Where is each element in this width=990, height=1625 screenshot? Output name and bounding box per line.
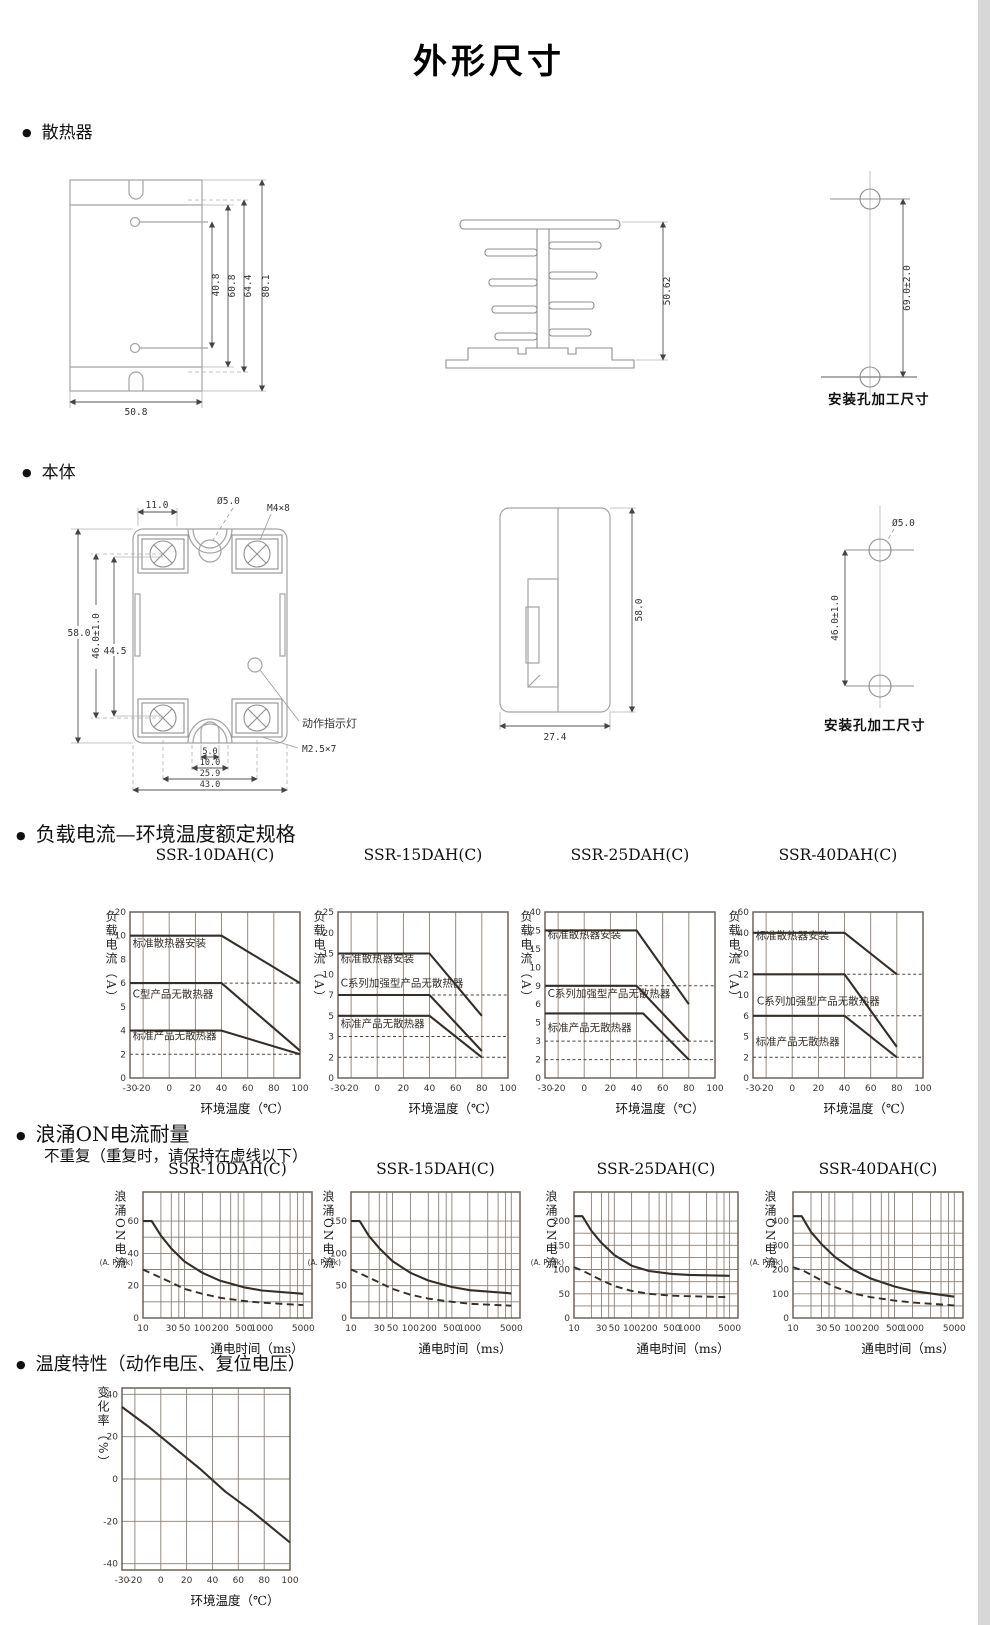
heatsink-front-view: 40.8 60.8 64.4 80.1 50.8: [38, 166, 308, 418]
svg-text:60: 60: [450, 1084, 462, 1094]
svg-text:50: 50: [336, 1282, 348, 1292]
heatsink-outline: [70, 180, 208, 391]
svg-text:100: 100: [844, 1324, 861, 1334]
svg-text:1000: 1000: [678, 1324, 701, 1334]
svg-text:30: 30: [374, 1324, 386, 1334]
ylab: 负载电流（A）: [100, 910, 120, 1035]
svg-text:0: 0: [166, 1084, 172, 1094]
bullet-icon: ●: [16, 1129, 26, 1142]
svg-text:100: 100: [402, 1324, 419, 1334]
svg-text:5000: 5000: [500, 1324, 523, 1334]
plot-frame: [351, 1192, 520, 1318]
svg-text:0: 0: [564, 1314, 570, 1324]
svg-text:5: 5: [120, 1003, 126, 1013]
svg-text:0: 0: [120, 1074, 126, 1084]
dim-screw-pitch: 25.9: [200, 769, 220, 779]
dim-height: 58.0: [634, 598, 645, 621]
dim-width: 50.8: [125, 407, 148, 418]
ctitle: SSR-10DAH(C): [138, 1160, 318, 1178]
plot-frame: [143, 1192, 312, 1318]
ctitle: SSR-15DAH(C): [333, 846, 513, 864]
extension-lines: [500, 508, 636, 730]
svg-text:80: 80: [476, 1084, 488, 1094]
gridlines: [574, 1192, 738, 1318]
gridlines: [793, 1192, 963, 1318]
svg-text:4: 4: [120, 1027, 126, 1037]
heatsink-mounting-holes: 69.0±2.0: [805, 163, 980, 408]
svg-text:0: 0: [374, 1084, 380, 1094]
bullet-icon: ●: [16, 1358, 26, 1371]
svg-text:200: 200: [420, 1324, 437, 1334]
xlab: 通电时间（ms）: [841, 1338, 975, 1357]
series-label: C系列加强型产品无散热器: [341, 977, 464, 990]
caption-mounting-holes: 安装孔加工尺寸: [828, 388, 930, 408]
svg-text:-40: -40: [103, 1560, 118, 1570]
plot-frame: [793, 1192, 963, 1318]
ylab2: (A. Peak): [737, 1258, 783, 1267]
svg-text:0: 0: [535, 1074, 541, 1084]
dim-slot-span: 64.4: [243, 274, 254, 297]
side-outline: [500, 508, 610, 712]
leader-line: [887, 529, 894, 541]
relay-top-view: 11.0 Ø5.0 M4×8 58.0 46.0±1.0 44.5 5.0 10…: [55, 478, 385, 808]
bullet-icon: ●: [16, 829, 26, 842]
svg-text:80: 80: [683, 1084, 695, 1094]
ctitle: SSR-25DAH(C): [540, 846, 720, 864]
dim-hole: Ø5.0: [892, 518, 915, 529]
axis-tick-labels: 010020030040010305010020050010005000: [772, 1217, 966, 1334]
svg-text:8: 8: [120, 955, 126, 965]
xlab: 环境温度（℃）: [801, 1098, 935, 1117]
axis-tick-labels: 0235710152025-30-20020406080100: [323, 908, 517, 1094]
svg-text:-20: -20: [136, 1084, 151, 1094]
series-label: 标准散热器安装: [133, 936, 207, 949]
dim-height: 80.1: [261, 274, 272, 297]
svg-text:100: 100: [623, 1324, 640, 1334]
dim-height: 50.62: [662, 277, 673, 306]
svg-text:2: 2: [743, 1053, 749, 1063]
svg-text:200: 200: [212, 1324, 229, 1334]
series-line: [122, 1407, 290, 1543]
svg-text:40: 40: [216, 1084, 228, 1094]
svg-text:50: 50: [179, 1324, 191, 1334]
svg-text:40: 40: [631, 1084, 643, 1094]
svg-text:1000: 1000: [250, 1324, 273, 1334]
svg-text:10: 10: [137, 1324, 149, 1334]
dim-slot-b: 10.0: [200, 758, 220, 768]
dim-slot-a: 5.0: [202, 747, 217, 757]
svg-text:100: 100: [914, 1084, 931, 1094]
dim-screw-top: M4×8: [267, 503, 290, 514]
axis-tick-labels: -40-2002040-30-20020406080100: [103, 1390, 299, 1586]
svg-text:-20: -20: [344, 1084, 359, 1094]
gridlines: [122, 1388, 290, 1570]
svg-text:5000: 5000: [943, 1324, 966, 1334]
svg-text:40: 40: [424, 1084, 436, 1094]
svg-text:1000: 1000: [901, 1324, 924, 1334]
section-derating-label: 负载电流—环境温度额定规格: [36, 822, 296, 846]
svg-text:3: 3: [535, 1037, 541, 1047]
section-heatsink: ●散热器: [22, 118, 93, 143]
svg-text:80: 80: [258, 1576, 270, 1586]
svg-text:100: 100: [194, 1324, 211, 1334]
chart-s15: 05010015010305010020050010005000: [305, 1184, 532, 1360]
terminal-blocks: [138, 535, 282, 737]
dim-hole: Ø5.0: [217, 496, 240, 507]
ctitle: SSR-40DAH(C): [748, 846, 928, 864]
svg-text:6: 6: [743, 1012, 749, 1022]
section-derating: ●负载电流—环境温度额定规格: [16, 818, 296, 847]
label-indicator: 动作指示灯: [302, 716, 357, 730]
svg-text:30: 30: [816, 1324, 828, 1334]
series-label: C型产品无散热器: [133, 987, 214, 1000]
section-surge: ●浪涌ON电流耐量: [16, 1118, 190, 1147]
svg-text:3: 3: [328, 1033, 334, 1043]
dim-fin-span: 60.8: [227, 274, 238, 297]
xlab: 通电时间（ms）: [190, 1338, 324, 1357]
dim-hole-pitch: 40.8: [211, 273, 222, 296]
svg-text:5: 5: [328, 1012, 334, 1022]
svg-text:80: 80: [891, 1084, 903, 1094]
svg-text:2: 2: [120, 1050, 126, 1060]
svg-text:7: 7: [328, 991, 334, 1001]
gridlines: [143, 1192, 312, 1318]
label-screw-bottom: M2.5×7: [302, 744, 336, 755]
dim-terminal-pitch: 44.5: [104, 646, 127, 657]
dim-pitch: 69.0±2.0: [902, 265, 913, 311]
svg-text:60: 60: [233, 1576, 245, 1586]
svg-text:0: 0: [789, 1084, 795, 1094]
svg-text:20: 20: [128, 1282, 140, 1292]
svg-text:30: 30: [166, 1324, 178, 1334]
heatsink-fins: [446, 220, 634, 368]
bullet-icon: ●: [22, 466, 32, 479]
svg-text:200: 200: [862, 1324, 879, 1334]
svg-text:20: 20: [605, 1084, 617, 1094]
section-heatsink-label: 散热器: [42, 123, 93, 143]
chart-s40: 010020030040010305010020050010005000: [747, 1184, 975, 1360]
svg-text:40: 40: [207, 1576, 219, 1586]
svg-text:2: 2: [328, 1053, 334, 1063]
ylab2: (A. Peak): [518, 1258, 564, 1267]
svg-text:10: 10: [568, 1324, 580, 1334]
chart-s25: 05010015020010305010020050010005000: [528, 1184, 750, 1360]
series-label: 标准散热器安装: [341, 952, 415, 965]
svg-text:100: 100: [281, 1576, 298, 1586]
svg-text:60: 60: [657, 1084, 669, 1094]
dim-height: 58.0: [68, 628, 91, 639]
svg-text:-20: -20: [103, 1517, 118, 1527]
svg-text:100: 100: [772, 1290, 789, 1300]
svg-text:50: 50: [559, 1290, 571, 1300]
svg-text:20: 20: [181, 1576, 193, 1586]
dim-width: 27.4: [544, 732, 567, 743]
svg-text:0: 0: [341, 1314, 347, 1324]
datasheet-page: 外形尺寸 ●散热器: [0, 0, 990, 1625]
svg-text:0: 0: [783, 1314, 789, 1324]
series-label: 标准产品无散热器: [756, 1035, 840, 1048]
svg-text:5: 5: [743, 1033, 749, 1043]
svg-text:5: 5: [535, 1019, 541, 1029]
svg-text:50: 50: [609, 1324, 621, 1334]
series-label: C系列加强型产品无散热器: [548, 987, 671, 1000]
leader-lines: [213, 508, 299, 748]
svg-text:6: 6: [120, 979, 126, 989]
svg-text:20: 20: [813, 1084, 825, 1094]
ylab: 变化率（%）: [92, 1386, 112, 1491]
ylab: 负载电流（A）: [308, 910, 328, 1035]
ctitle: SSR-25DAH(C): [566, 1160, 746, 1178]
caption-mounting-holes: 安装孔加工尺寸: [824, 714, 926, 734]
plot-frame: [574, 1192, 738, 1318]
svg-text:-20: -20: [551, 1084, 566, 1094]
svg-text:0: 0: [112, 1475, 118, 1485]
axis-tick-labels: 05010015010305010020050010005000: [330, 1217, 523, 1334]
series-label: 标准散热器安装: [756, 929, 830, 942]
section-surge-label: 浪涌ON电流耐量: [36, 1122, 190, 1146]
svg-text:2: 2: [535, 1056, 541, 1066]
ctitle: SSR-40DAH(C): [788, 1160, 968, 1178]
xlab: 通电时间（ms）: [398, 1338, 532, 1357]
svg-text:30: 30: [596, 1324, 608, 1334]
svg-text:200: 200: [640, 1324, 657, 1334]
xlab: 通电时间（ms）: [616, 1338, 750, 1357]
svg-text:0: 0: [158, 1576, 164, 1586]
ylab2: (A. Peak): [87, 1258, 133, 1267]
dim-mount-pitch: 46.0±1.0: [91, 613, 102, 659]
svg-text:60: 60: [865, 1084, 877, 1094]
svg-text:0: 0: [743, 1074, 749, 1084]
svg-text:0: 0: [133, 1314, 139, 1324]
relay-mounting-holes: Ø5.0 46.0±1.0: [798, 496, 988, 726]
xlab: 环境温度（℃）: [168, 1590, 302, 1609]
dim-width: 43.0: [200, 780, 220, 790]
ctitle: SSR-10DAH(C): [125, 846, 305, 864]
svg-text:60: 60: [128, 1217, 140, 1227]
relay-side-view: 58.0 27.4: [468, 494, 683, 749]
series-label: 标准产品无散热器: [341, 1017, 425, 1030]
svg-text:10: 10: [345, 1324, 357, 1334]
ylab: 负载电流（A）: [515, 910, 535, 1035]
bullet-icon: ●: [22, 126, 32, 139]
series-label: 标准产品无散热器: [133, 1029, 217, 1042]
svg-text:20: 20: [190, 1084, 202, 1094]
svg-text:0: 0: [581, 1084, 587, 1094]
page-title: 外形尺寸: [0, 34, 978, 83]
series-label: C系列加强型产品无散热器: [757, 994, 880, 1007]
svg-text:50: 50: [387, 1324, 399, 1334]
svg-text:80: 80: [268, 1084, 280, 1094]
ylab2: (A. Peak): [295, 1258, 341, 1267]
svg-text:60: 60: [242, 1084, 254, 1094]
svg-text:10: 10: [787, 1324, 799, 1334]
svg-text:50: 50: [829, 1324, 841, 1334]
series-label: 标准产品无散热器: [548, 1021, 632, 1034]
dim-pitch: 46.0±1.0: [830, 595, 841, 641]
dim-tab: 11.0: [146, 500, 169, 511]
svg-text:9: 9: [535, 982, 541, 992]
series-label: 标准散热器安装: [548, 928, 622, 941]
series-line: [545, 1013, 689, 1059]
chart-s10: 020406010305010020050010005000: [97, 1184, 324, 1360]
ylab: 负载电流（A）: [723, 910, 743, 1035]
svg-text:0: 0: [328, 1074, 334, 1084]
svg-text:20: 20: [398, 1084, 410, 1094]
svg-text:-20: -20: [759, 1084, 774, 1094]
svg-text:-20: -20: [128, 1576, 143, 1586]
svg-text:5000: 5000: [718, 1324, 741, 1334]
svg-text:40: 40: [839, 1084, 851, 1094]
svg-text:6: 6: [535, 1000, 541, 1010]
svg-text:1000: 1000: [458, 1324, 481, 1334]
ctitle: SSR-15DAH(C): [346, 1160, 526, 1178]
heatsink-profile-view: 50.62: [438, 196, 688, 386]
gridlines: [351, 1192, 520, 1318]
